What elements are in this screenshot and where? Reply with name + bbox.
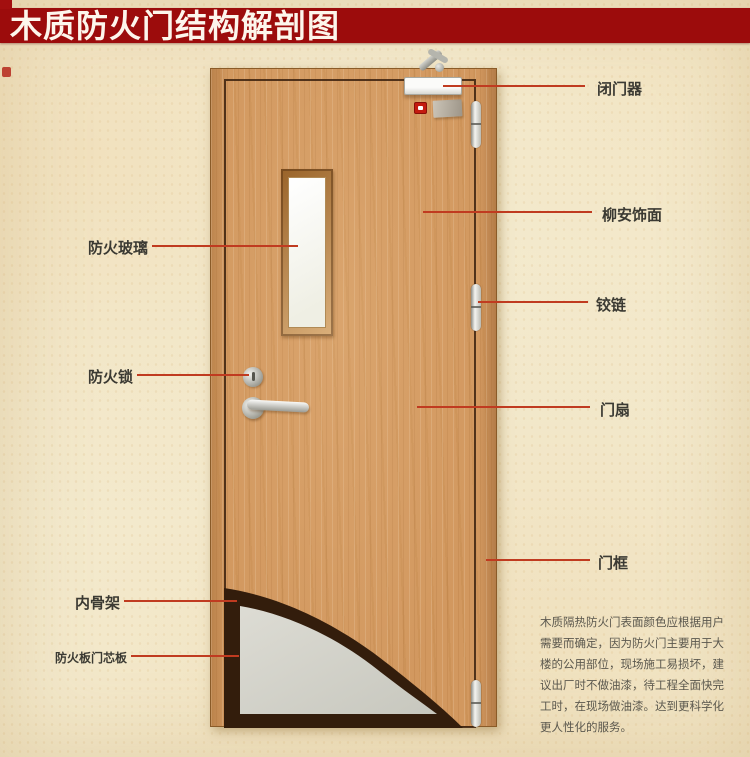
leader-line (152, 245, 298, 247)
door-closer-joint (435, 63, 444, 72)
label-door-frame: 门框 (598, 552, 628, 573)
title-banner: 木质防火门结构解剖图 (0, 8, 750, 43)
page-title: 木质防火门结构解剖图 (10, 8, 340, 43)
note-line: 工时，在现场做油漆。达到更科学化 (540, 696, 740, 717)
leader-line (124, 600, 237, 602)
note-line: 木质隔热防火门表面颜色应根据用户 (540, 612, 740, 633)
description-note: 木质隔热防火门表面颜色应根据用户 需要而确定，因为防火门主要用于大 楼的公用部位… (540, 612, 740, 738)
leader-line (417, 406, 590, 408)
door-assembly (210, 68, 497, 727)
hinge-middle (471, 284, 481, 331)
red-corner-fragment (0, 0, 12, 9)
leader-line (423, 211, 592, 213)
red-mark (2, 67, 11, 77)
vision-panel-glass (288, 177, 326, 328)
note-line: 需要而确定，因为防火门主要用于大 (540, 633, 740, 654)
label-fire-glass: 防火玻璃 (48, 237, 148, 258)
vision-panel-frame (281, 169, 333, 336)
note-line: 楼的公用部位，现场施工易损坏，建 (540, 654, 740, 675)
core-board-shape (240, 606, 437, 714)
hinge-bottom (471, 680, 481, 727)
label-hinge: 铰链 (596, 294, 626, 315)
hinge-top (471, 101, 481, 148)
label-door-closer: 闭门器 (597, 78, 642, 99)
leader-line (486, 559, 590, 561)
note-line: 更人性化的服务。 (540, 717, 740, 738)
label-core-board: 防火板门芯板 (15, 649, 127, 666)
label-inner-skeleton: 内骨架 (35, 592, 120, 613)
note-line: 议出厂时不做油漆，待工程全面快完 (540, 675, 740, 696)
diagram-canvas: 木质防火门结构解剖图 (0, 0, 750, 757)
alarm-indicator (414, 102, 427, 114)
leader-line (443, 85, 585, 87)
label-door-leaf: 门扇 (600, 399, 630, 420)
leader-line (131, 655, 239, 657)
fire-lock-cylinder (243, 367, 263, 387)
leader-line (478, 301, 588, 303)
label-veneer: 柳安饰面 (602, 204, 662, 225)
sensor-box (433, 99, 463, 117)
leader-line (137, 374, 249, 376)
cutaway-section (223, 576, 479, 728)
label-fire-lock: 防火锁 (43, 366, 133, 387)
